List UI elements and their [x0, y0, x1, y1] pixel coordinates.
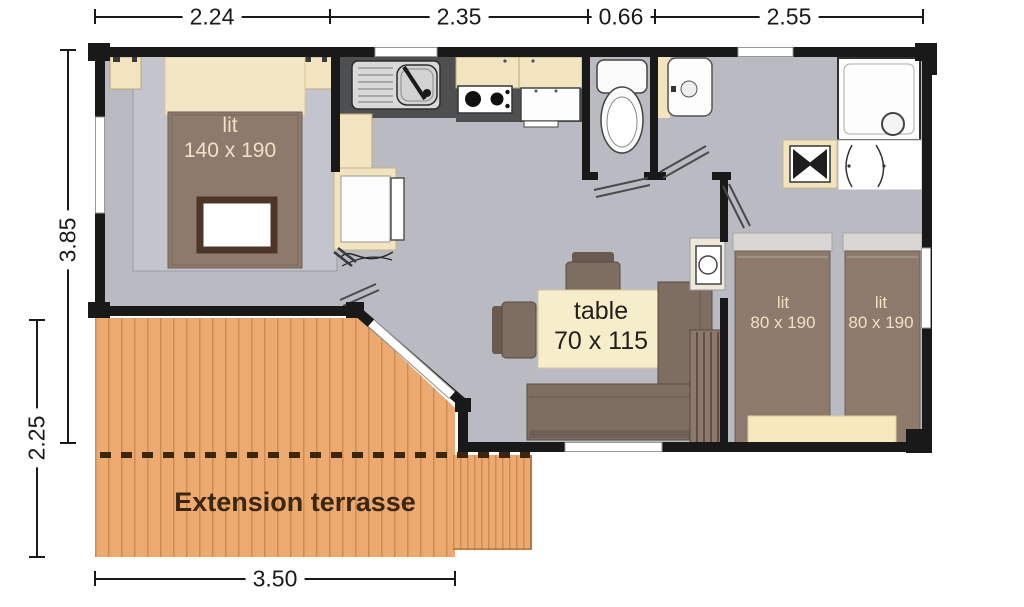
dimension-label-top-1: 2.24	[183, 4, 242, 31]
table-label-line1: table	[525, 297, 677, 327]
corner-post	[455, 398, 471, 412]
dimension-tick	[60, 442, 76, 444]
nightstand-hinge	[132, 57, 137, 62]
terrace-label: Extension terrasse	[140, 487, 450, 519]
folding-door-icon	[838, 140, 922, 190]
master-bed-label-line2: 140 x 190	[150, 139, 310, 164]
dimension-tick	[29, 556, 45, 558]
dimension-label-bottom: 3.50	[246, 566, 305, 593]
shower-icon	[838, 58, 920, 140]
dimension-label-top-2: 2.35	[430, 4, 489, 31]
wall	[650, 57, 658, 180]
nightstand-hinge	[322, 57, 327, 62]
heater-mark	[671, 86, 676, 92]
kitchen-sink-icon	[352, 61, 440, 109]
bed-pillows	[165, 57, 305, 115]
single-bed-right-icon	[843, 233, 922, 443]
washbasin-icon	[783, 140, 837, 188]
water-heater-icon	[658, 57, 712, 118]
bed-mattress	[845, 251, 920, 443]
shower-drain	[882, 113, 904, 135]
window	[565, 443, 662, 452]
wall	[582, 57, 590, 180]
dimension-tick	[587, 9, 589, 24]
nightstand-hinge	[113, 57, 120, 62]
door-arc-dot	[847, 164, 850, 167]
bed-headboard	[733, 233, 832, 251]
dimension-label-left-terrace: 2.25	[24, 409, 51, 468]
heater-dial	[681, 81, 697, 97]
dimension-tick	[94, 9, 96, 24]
bed-blanket	[200, 200, 274, 250]
fridge-handle	[524, 121, 558, 127]
floor-plan: lit 140 x 190 table 70 x 115 lit 80 x 19…	[0, 0, 1024, 607]
wall	[712, 172, 731, 180]
bed-headboard	[843, 233, 922, 251]
hob-knob	[505, 104, 509, 108]
fridge-icon	[521, 88, 580, 127]
twin-bed-right-label: lit 80 x 190	[822, 293, 940, 333]
bench-backrest	[529, 430, 712, 438]
corner-post	[906, 429, 932, 453]
wall	[331, 57, 340, 172]
wall	[582, 172, 598, 180]
cabinet-handle	[531, 59, 534, 62]
bedroom-door-leaf	[391, 178, 404, 240]
twin-bed-right-label-line1: lit	[822, 293, 940, 313]
door-arc-dot	[882, 164, 885, 167]
bed-mattress	[735, 251, 830, 443]
window	[96, 117, 105, 213]
dimension-tick	[60, 49, 76, 51]
dimension-tick	[454, 571, 456, 586]
dimension-label-left-building: 3.85	[55, 211, 82, 270]
drain	[423, 89, 431, 97]
window	[738, 48, 793, 57]
twin-bed-right-label-line2: 80 x 190	[822, 313, 940, 333]
master-bed-label-line1: lit	[150, 114, 310, 139]
table-label-line2: 70 x 115	[525, 327, 677, 357]
dimension-tick	[329, 9, 331, 24]
table-label: table 70 x 115	[525, 297, 677, 356]
hob-knob	[505, 90, 509, 94]
fridge-mark	[535, 90, 538, 93]
corner-post	[88, 43, 110, 61]
dimension-tick	[94, 571, 96, 586]
dimension-tick	[654, 9, 656, 24]
dimension-tick	[922, 9, 924, 24]
fridge-top	[521, 88, 580, 121]
corner-washbasin-icon	[690, 238, 725, 290]
corner-post	[922, 43, 937, 75]
corner-post	[346, 302, 364, 318]
window	[375, 48, 437, 57]
master-bed-label: lit 140 x 190	[150, 114, 310, 164]
gas-hob-icon	[458, 86, 512, 113]
bedroom-rug	[748, 416, 896, 443]
burner-small	[491, 93, 504, 106]
corner-post	[88, 302, 110, 318]
fridge-mark	[555, 90, 558, 93]
cabinet-handle	[503, 59, 506, 62]
unit-front	[341, 176, 390, 242]
dimension-label-top-3: 0.66	[592, 4, 651, 31]
toilet-bowl-inner	[607, 97, 637, 147]
dimension-tick	[29, 319, 45, 321]
wardrobe-icon	[690, 330, 722, 447]
shower-tray	[838, 58, 920, 140]
upper-cabinets-icon	[456, 57, 582, 88]
single-bed-left-icon	[733, 233, 832, 443]
burner-large	[465, 91, 481, 107]
toilet-icon	[597, 60, 647, 153]
dimension-label-top-4: 2.55	[760, 4, 819, 31]
basin-bowl	[699, 256, 717, 274]
